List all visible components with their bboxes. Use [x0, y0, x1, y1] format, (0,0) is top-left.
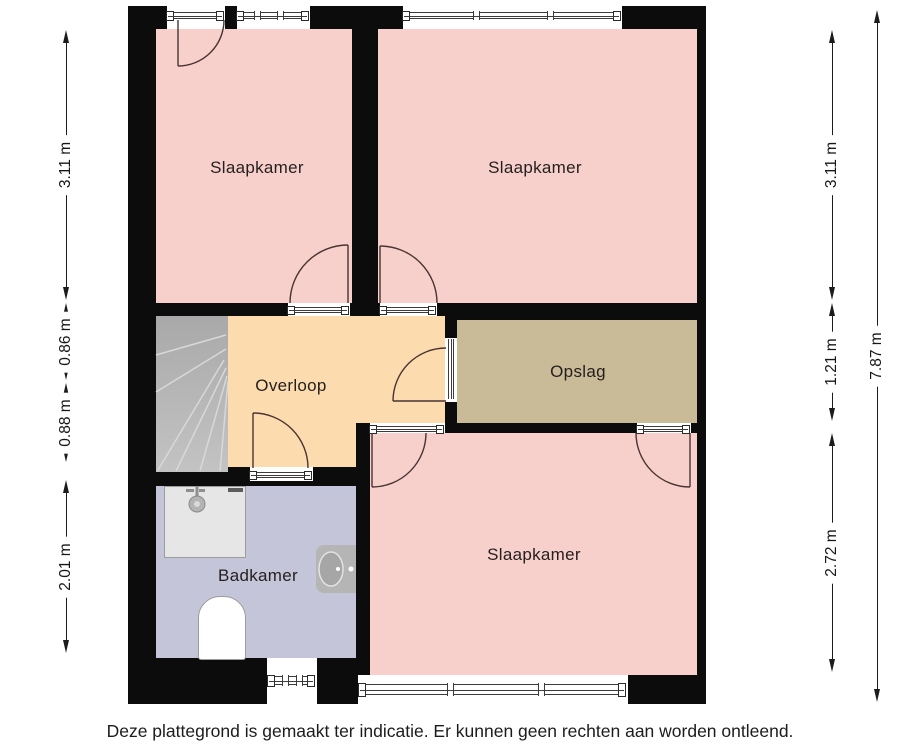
door-slaapkamer-top-left — [288, 303, 350, 316]
room-label-badkamer: Badkamer — [218, 566, 298, 586]
sink-fixture — [316, 545, 356, 593]
door-slaapkamer-bottom-right — [637, 423, 691, 433]
window-jamb-icon — [236, 11, 244, 21]
dimension-value: 1.21 m — [823, 331, 841, 392]
window-top-left-recess — [237, 6, 310, 29]
window-bathroom-bay — [267, 658, 317, 704]
shower-control-icon — [186, 489, 194, 492]
door-threshold — [371, 426, 442, 432]
arrow-down-icon — [829, 287, 835, 300]
door-jamb-icon — [436, 425, 444, 434]
arrow-down-icon — [63, 287, 69, 300]
window-top-left — [238, 12, 307, 19]
arrow-up-icon — [63, 480, 69, 493]
door-slaapkamer-bottom-left — [370, 423, 445, 433]
door-opslag — [445, 338, 457, 402]
disclaimer-text: Deze plattegrond is gemaakt ter indicati… — [0, 721, 900, 742]
door-threshold — [448, 339, 454, 399]
window-mullion-icon — [277, 11, 284, 20]
door-jamb-icon — [369, 425, 377, 434]
window-jamb-icon — [358, 683, 366, 697]
balcony-door-recess — [167, 6, 225, 29]
room-label-slaapkamer-bottom: Slaapkamer — [487, 545, 581, 565]
door-threshold — [289, 307, 347, 313]
door-jamb-icon — [428, 306, 436, 315]
arrow-up-icon — [829, 303, 835, 316]
door-jamb-icon — [249, 471, 257, 480]
dimension-value: 0.86 m — [57, 311, 75, 372]
shower-control-icon — [199, 489, 205, 492]
door-jamb-icon — [216, 11, 224, 21]
window-jamb-icon — [618, 683, 626, 697]
window-bottom-bedroom — [360, 684, 624, 695]
door-slaapkamer-top-right — [380, 303, 437, 316]
door-jamb-icon — [341, 306, 349, 315]
room-label-overloop: Overloop — [255, 376, 326, 396]
arrow-down-icon — [874, 689, 880, 702]
window-top-right-recess — [403, 6, 622, 29]
door-jamb-icon — [682, 425, 690, 434]
room-label-slaapkamer-top-right: Slaapkamer — [488, 158, 582, 178]
room-label-slaapkamer-top-left: Slaapkamer — [210, 158, 304, 178]
window-top-right — [404, 12, 619, 19]
arrow-down-icon — [63, 640, 69, 653]
toilet-fixture — [198, 596, 246, 660]
window-mullion-icon — [447, 683, 454, 696]
bath-label-mark — [228, 488, 243, 492]
door-threshold — [381, 307, 434, 313]
window-bottom-bedroom-bay — [358, 675, 628, 704]
room-label-opslag: Opslag — [550, 362, 606, 382]
door-jamb-icon — [304, 471, 312, 480]
window-mullion-icon — [547, 11, 554, 20]
dimension-value: 2.01 m — [57, 536, 75, 597]
arrow-down-icon — [829, 408, 835, 421]
door-threshold — [638, 426, 688, 432]
room-overloop — [228, 316, 445, 423]
dimension-value: 2.72 m — [823, 522, 841, 583]
window-mullion-icon — [296, 675, 303, 686]
arrow-up-icon — [829, 433, 835, 446]
dimension-value: 0.88 m — [57, 392, 75, 453]
window-jamb-icon — [402, 11, 410, 21]
shower-fixture — [164, 486, 246, 558]
door-jamb-icon — [166, 11, 174, 21]
window-jamb-icon — [301, 11, 309, 21]
dimension-value: 3.11 m — [57, 135, 75, 195]
door-threshold — [251, 472, 310, 478]
balcony-door-frame — [168, 12, 222, 19]
staircase-area — [156, 316, 228, 472]
room-overloop-extension — [228, 423, 356, 467]
door-jamb-icon — [379, 306, 387, 315]
dimension-value: 3.11 m — [823, 135, 841, 195]
window-jamb-icon — [267, 675, 275, 687]
window-jamb-icon — [307, 675, 315, 687]
arrow-up-icon — [874, 10, 880, 23]
arrow-up-icon — [63, 30, 69, 43]
door-badkamer — [250, 467, 313, 481]
floorplan-page: { "rooms": [ {"name": "slaapkamer-top-le… — [0, 0, 900, 750]
window-bathroom — [269, 676, 313, 685]
window-jamb-icon — [613, 11, 621, 21]
door-jamb-icon — [636, 425, 644, 434]
arrow-up-icon — [829, 30, 835, 43]
arrow-down-icon — [829, 659, 835, 672]
window-mullion-icon — [473, 11, 480, 20]
window-mullion-icon — [538, 683, 545, 696]
door-jamb-icon — [287, 306, 295, 315]
window-mullion-icon — [254, 11, 261, 20]
dimension-value: 7.87 m — [868, 325, 886, 386]
window-mullion-icon — [282, 675, 289, 686]
